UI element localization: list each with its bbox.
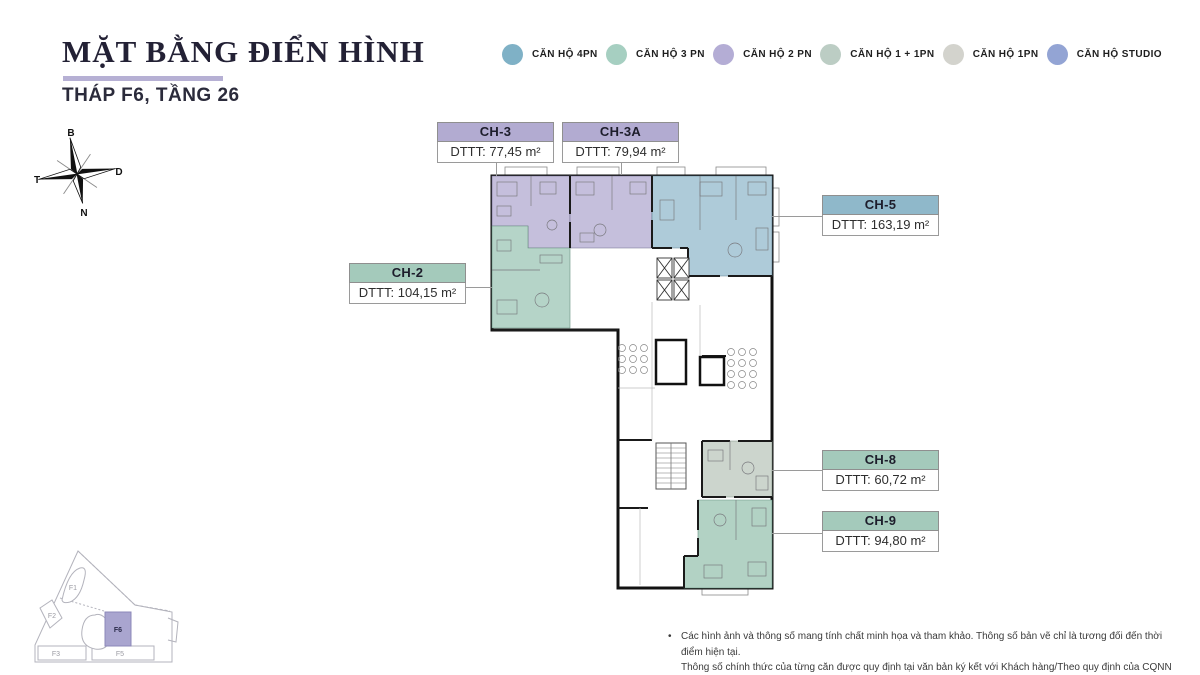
unit-id-ch9[interactable]: CH-9 [822, 511, 939, 531]
leader-line-ch8 [772, 470, 822, 471]
unit-area-ch9: DTTT: 94,80 m² [822, 531, 939, 552]
unit-id-ch5[interactable]: CH-5 [822, 195, 939, 215]
unit-label-ch3a[interactable]: CH-3A DTTT: 79,94 m² [562, 122, 679, 163]
floor-plan-page: MẶT BẰNG ĐIỂN HÌNH THÁP F6, TẦNG 26 CĂN … [0, 0, 1200, 675]
legend-item-3pn: CĂN HỘ 3 PN [606, 44, 705, 65]
unit-area-ch3a: DTTT: 79,94 m² [562, 142, 679, 163]
legend-label-1plus1pn: CĂN HỘ 1 + 1PN [850, 49, 934, 60]
legend-item-1pn: CĂN HỘ 1PN [943, 44, 1039, 65]
compass-rose-icon: B D T N [30, 120, 126, 224]
unit-id-ch2[interactable]: CH-2 [349, 263, 466, 283]
site-label-f5: F5 [116, 651, 124, 658]
unit-label-ch5[interactable]: CH-5 DTTT: 163,19 m² [822, 195, 939, 236]
tower-floor-subtitle: THÁP F6, TẦNG 26 [62, 85, 240, 107]
legend-item-4pn: CĂN HỘ 4PN [502, 44, 598, 65]
floor-plan-drawing [430, 115, 800, 607]
unit-region-ch8[interactable] [702, 441, 772, 497]
leader-line-ch3 [496, 162, 497, 176]
compass-west-label: T [34, 175, 40, 186]
unit-area-ch2: DTTT: 104,15 m² [349, 283, 466, 304]
site-label-f1: F1 [69, 585, 77, 592]
legend-label-4pn: CĂN HỘ 4PN [532, 49, 598, 60]
legend-dot-studio-icon [1047, 44, 1068, 65]
page-title: MẶT BẰNG ĐIỂN HÌNH [62, 34, 425, 70]
leader-line-ch9 [772, 533, 822, 534]
unit-label-ch9[interactable]: CH-9 DTTT: 94,80 m² [822, 511, 939, 552]
stairwell [656, 443, 686, 489]
unit-id-ch3a[interactable]: CH-3A [562, 122, 679, 142]
legend-dot-2pn-icon [713, 44, 734, 65]
unit-label-ch8[interactable]: CH-8 DTTT: 60,72 m² [822, 450, 939, 491]
disclaimer-bullet: • [668, 629, 681, 660]
unit-area-ch3: DTTT: 77,45 m² [437, 142, 554, 163]
unit-type-legend: CĂN HỘ 4PN CĂN HỘ 3 PN CĂN HỘ 2 PN CĂN H… [502, 44, 1162, 65]
legend-label-1pn: CĂN HỘ 1PN [973, 49, 1039, 60]
disclaimer: • Các hình ảnh và thông số mang tính chấ… [668, 629, 1173, 675]
title-divider [63, 76, 223, 81]
leader-line-ch2 [466, 287, 492, 288]
legend-label-3pn: CĂN HỘ 3 PN [636, 49, 705, 60]
legend-dot-1plus1pn-icon [820, 44, 841, 65]
legend-dot-3pn-icon [606, 44, 627, 65]
legend-item-studio: CĂN HỘ STUDIO [1047, 44, 1162, 65]
unit-region-ch3a[interactable] [570, 176, 652, 248]
site-key-plan: F1 F2 F3 F5 F6 [25, 545, 180, 670]
unit-area-ch5: DTTT: 163,19 m² [822, 215, 939, 236]
compass-south-label: N [80, 208, 87, 219]
legend-dot-4pn-icon [502, 44, 523, 65]
leader-line-ch5 [772, 216, 822, 217]
legend-dot-1pn-icon [943, 44, 964, 65]
unit-area-ch8: DTTT: 60,72 m² [822, 470, 939, 491]
legend-label-2pn: CĂN HỘ 2 PN [743, 49, 812, 60]
unit-id-ch3[interactable]: CH-3 [437, 122, 554, 142]
unit-id-ch8[interactable]: CH-8 [822, 450, 939, 470]
legend-label-studio: CĂN HỘ STUDIO [1077, 49, 1162, 60]
unit-label-ch2[interactable]: CH-2 DTTT: 104,15 m² [349, 263, 466, 304]
leader-line-ch3a [621, 162, 622, 175]
site-label-f6: F6 [114, 627, 122, 634]
disclaimer-line1: Các hình ảnh và thông số mang tính chất … [681, 629, 1173, 660]
unit-label-ch3[interactable]: CH-3 DTTT: 77,45 m² [437, 122, 554, 163]
compass-north-label: B [67, 128, 74, 139]
compass-east-label: D [115, 167, 122, 178]
site-label-f3: F3 [52, 651, 60, 658]
site-label-f2: F2 [48, 613, 56, 620]
legend-item-1plus1pn: CĂN HỘ 1 + 1PN [820, 44, 934, 65]
disclaimer-line2: Thông số chính thức của từng căn được qu… [681, 660, 1172, 675]
legend-item-2pn: CĂN HỘ 2 PN [713, 44, 812, 65]
